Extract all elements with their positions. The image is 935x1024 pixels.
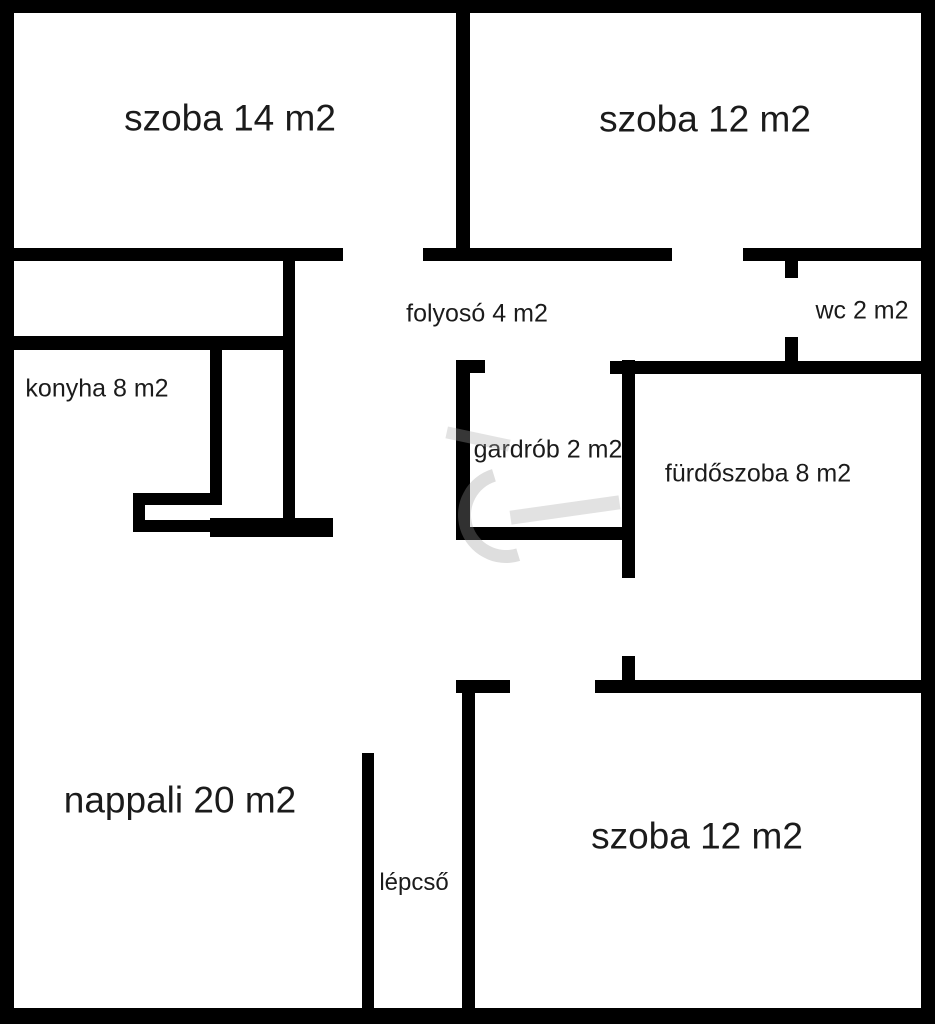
wall-eloszoba-niche-right xyxy=(283,258,295,520)
wall-szoba12top-bottom-right xyxy=(743,248,935,261)
wall-szoba14-szoba12-divider xyxy=(456,0,470,261)
room-label-szoba-14: szoba 14 m2 xyxy=(124,100,336,137)
wall-gardrob-left xyxy=(456,360,470,540)
wall-lepcso-left xyxy=(362,753,374,1008)
wall-outer-left xyxy=(0,0,14,1024)
room-label-wc: wc 2 m2 xyxy=(815,299,908,324)
wall-konyha-niche-bottom xyxy=(133,520,210,532)
wall-szoba12bottom-top-right xyxy=(595,680,935,693)
room-label-szoba-12-bottom: szoba 12 m2 xyxy=(591,818,803,855)
wall-furdoszoba-top xyxy=(610,361,935,374)
wall-gardrob-bottom xyxy=(456,527,635,540)
wall-outer-right xyxy=(921,0,935,1024)
room-label-lepcso: lépcső xyxy=(379,871,448,895)
wall-konyha-strip-left xyxy=(210,343,222,505)
room-label-nappali: nappali 20 m2 xyxy=(64,782,296,819)
wall-szoba12bottom-left xyxy=(462,680,475,1024)
room-label-konyha: konyha 8 m2 xyxy=(25,377,168,402)
wall-gardrob-right xyxy=(622,360,635,578)
wall-szoba12top-bottom-left xyxy=(423,248,672,261)
wall-konyha-top xyxy=(13,336,283,350)
room-label-folyoso: folyosó 4 m2 xyxy=(406,302,548,327)
room-label-szoba-12-top: szoba 12 m2 xyxy=(599,101,811,138)
wall-konyha-thick-bottom xyxy=(210,518,333,537)
watermark-bar-icon xyxy=(510,495,621,524)
wall-konyha-niche-top xyxy=(133,493,222,505)
wall-wc-left-lower-stub xyxy=(785,337,798,363)
floor-plan: szoba 14 m2szoba 12 m2folyosó 4 m2wc 2 m… xyxy=(0,0,935,1024)
wall-wc-left-upper-stub xyxy=(785,261,798,278)
room-label-gardrob: gardrób 2 m2 xyxy=(474,438,623,463)
room-label-furdoszoba: fürdőszoba 8 m2 xyxy=(665,462,851,487)
